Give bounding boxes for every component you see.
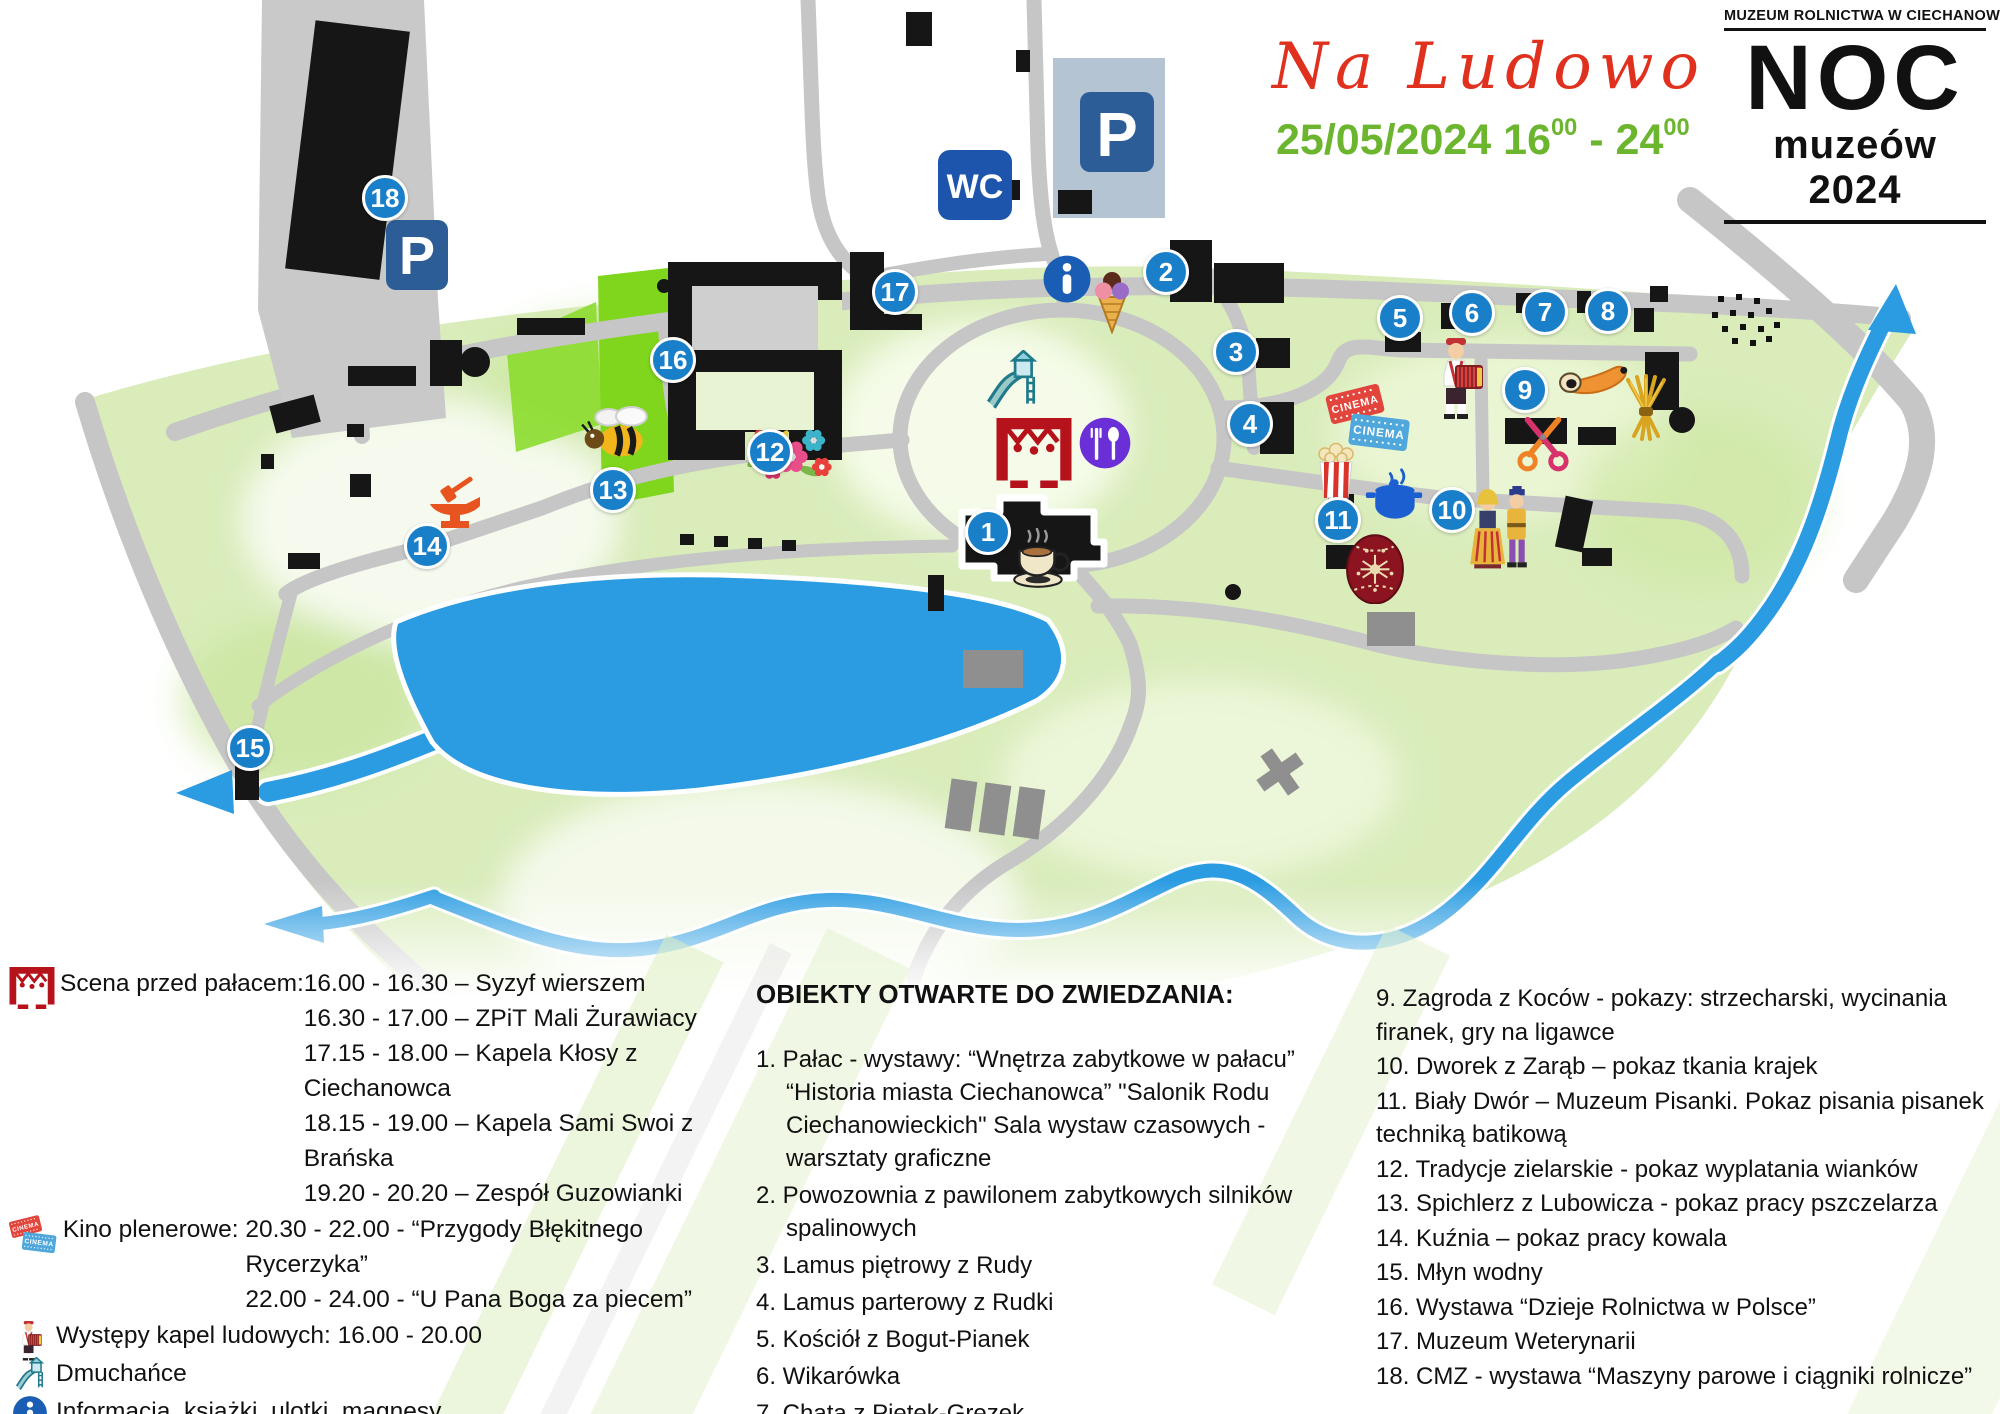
cinema-schedule-line: 22.00 - 24.00 - “U Pana Boga za piecem” bbox=[245, 1282, 752, 1317]
objects-list-1-8: 1. Pałac - wystawy: “Wnętrza zabytkowe w… bbox=[756, 1043, 1368, 1414]
museum-night-map-poster: WC P P CINEMACINEMA 12345678910111213141… bbox=[0, 0, 2000, 1414]
logo-year-text: muzeów 2024 bbox=[1724, 123, 1986, 224]
object-item: 15. Młyn wodny bbox=[1376, 1256, 2000, 1290]
stage-icon bbox=[8, 967, 56, 1003]
object-item: 5. Kościół z Bogut-Pianek bbox=[756, 1323, 1368, 1356]
legend-row-inflatables: Dmuchańce bbox=[8, 1356, 752, 1393]
parking-sign-label: P bbox=[399, 226, 435, 286]
building-watermill bbox=[235, 758, 259, 800]
legend-row-stage: Scena przed pałacem: 16.00 - 16.30 – Syz… bbox=[8, 966, 752, 1211]
object-item: 12. Tradycje zielarskie - pokaz wyplatan… bbox=[1376, 1153, 2000, 1187]
legend-row-folk-bands: Występy kapel ludowych: 16.00 - 20.00 bbox=[8, 1318, 752, 1355]
object-item: 4. Lamus parterowy z Rudki bbox=[756, 1286, 1368, 1319]
river-flow-arrow bbox=[176, 770, 234, 814]
legend-row-info: Informacja, książki, ulotki, magnesy bbox=[8, 1394, 752, 1414]
stage-schedule: 16.00 - 16.30 – Syzyf wierszem16.30 - 17… bbox=[304, 966, 752, 1211]
object-item: 1. Pałac - wystawy: “Wnętrza zabytkowe w… bbox=[756, 1043, 1368, 1175]
object-item: 3. Lamus piętrowy z Rudy bbox=[756, 1249, 1368, 1282]
playground-slide-icon bbox=[8, 1357, 52, 1393]
cinema-label: Kino plenerowe: bbox=[63, 1212, 239, 1247]
cinema-schedule: 20.30 - 22.00 - “Przygody Błękitnego Ryc… bbox=[245, 1212, 752, 1317]
parking-sign-label: P bbox=[1096, 101, 1137, 170]
object-item: 18. CMZ - wystawa “Maszyny parowe i ciąg… bbox=[1376, 1360, 2000, 1394]
info-label: Informacja, książki, ulotki, magnesy bbox=[56, 1394, 441, 1414]
object-item: 2. Powozownia z pawilonem zabytkowych si… bbox=[756, 1179, 1368, 1245]
noc-muzeow-logo: MUZEUM ROLNICTWA W CIECHANOWCU NOC muzeó… bbox=[1724, 8, 1986, 224]
object-item: 10. Dworek z Zarąb – pokaz tkania krajek bbox=[1376, 1050, 2000, 1084]
legend-activities: Scena przed pałacem: 16.00 - 16.30 – Syz… bbox=[8, 966, 752, 1414]
object-item: 14. Kuźnia – pokaz pracy kowala bbox=[1376, 1222, 2000, 1256]
parking-lot-sign: P bbox=[1053, 58, 1165, 218]
event-time-end-minutes: 00 bbox=[1663, 115, 1689, 141]
object-item: 7. Chata z Piętek-Gręzek bbox=[756, 1397, 1368, 1414]
legend-open-objects: OBIEKTY OTWARTE DO ZWIEDZANIA: 1. Pałac … bbox=[756, 978, 1368, 1414]
event-date-time: 25/05/2024 1600 - 2400 bbox=[1276, 116, 1736, 165]
object-item: 13. Spichlerz z Lubowicza - pokaz pracy … bbox=[1376, 1187, 2000, 1221]
building-palace bbox=[962, 498, 1104, 578]
object-item: 11. Biały Dwór – Muzeum Pisanki. Pokaz p… bbox=[1376, 1085, 2000, 1152]
wc-sign: WC bbox=[938, 150, 1012, 220]
info-icon bbox=[8, 1395, 52, 1414]
parking-sign-west: P bbox=[386, 220, 448, 290]
event-time-start: 16 bbox=[1503, 116, 1551, 164]
stage-schedule-line: 18.15 - 19.00 – Kapela Sami Swoi z Brańs… bbox=[304, 1106, 752, 1176]
legend-row-cinema: CINEMACINEMA Kino plenerowe: 20.30 - 22.… bbox=[8, 1212, 752, 1317]
object-item: 9. Zagroda z Koców - pokazy: strzecharsk… bbox=[1376, 982, 2000, 1049]
wc-sign-label: WC bbox=[947, 168, 1004, 206]
stage-schedule-line: 17.15 - 18.00 – Kapela Kłosy z Ciechanow… bbox=[304, 1036, 752, 1106]
event-time-end: 24 bbox=[1616, 116, 1664, 164]
logo-noc-text: NOC bbox=[1724, 33, 1986, 123]
stage-schedule-line: 19.20 - 20.20 – Zespół Guzowianki bbox=[304, 1176, 752, 1211]
objects-header: OBIEKTY OTWARTE DO ZWIEDZANIA: bbox=[756, 978, 1368, 1011]
objects-list-9-18: 9. Zagroda z Koców - pokazy: strzecharsk… bbox=[1376, 982, 2000, 1393]
folk-bands-label: Występy kapel ludowych: 16.00 - 20.00 bbox=[56, 1318, 482, 1353]
accordion-player-icon bbox=[8, 1319, 52, 1355]
event-time-start-minutes: 00 bbox=[1551, 115, 1577, 141]
inflatables-label: Dmuchańce bbox=[56, 1356, 187, 1391]
legend-open-objects-right: 9. Zagroda z Koców - pokazy: strzecharsk… bbox=[1376, 982, 2000, 1394]
cinema-tickets-icon: CINEMACINEMA bbox=[8, 1213, 59, 1249]
object-item: 16. Wystawa “Dzieje Rolnictwa w Polsce” bbox=[1376, 1291, 2000, 1325]
event-time-separator: - bbox=[1577, 116, 1615, 164]
event-title: Na Ludowo bbox=[1272, 30, 1722, 104]
object-item: 17. Muzeum Weterynarii bbox=[1376, 1325, 2000, 1359]
event-date: 25/05/2024 bbox=[1276, 116, 1491, 164]
stage-label: Scena przed pałacem: bbox=[60, 966, 304, 1001]
cinema-schedule-line: 20.30 - 22.00 - “Przygody Błękitnego Ryc… bbox=[245, 1212, 752, 1282]
stage-schedule-line: 16.00 - 16.30 – Syzyf wierszem bbox=[304, 966, 752, 1001]
stage-schedule-line: 16.30 - 17.00 – ZPiT Mali Żurawiacy bbox=[304, 1001, 752, 1036]
object-item: 6. Wikarówka bbox=[756, 1360, 1368, 1393]
